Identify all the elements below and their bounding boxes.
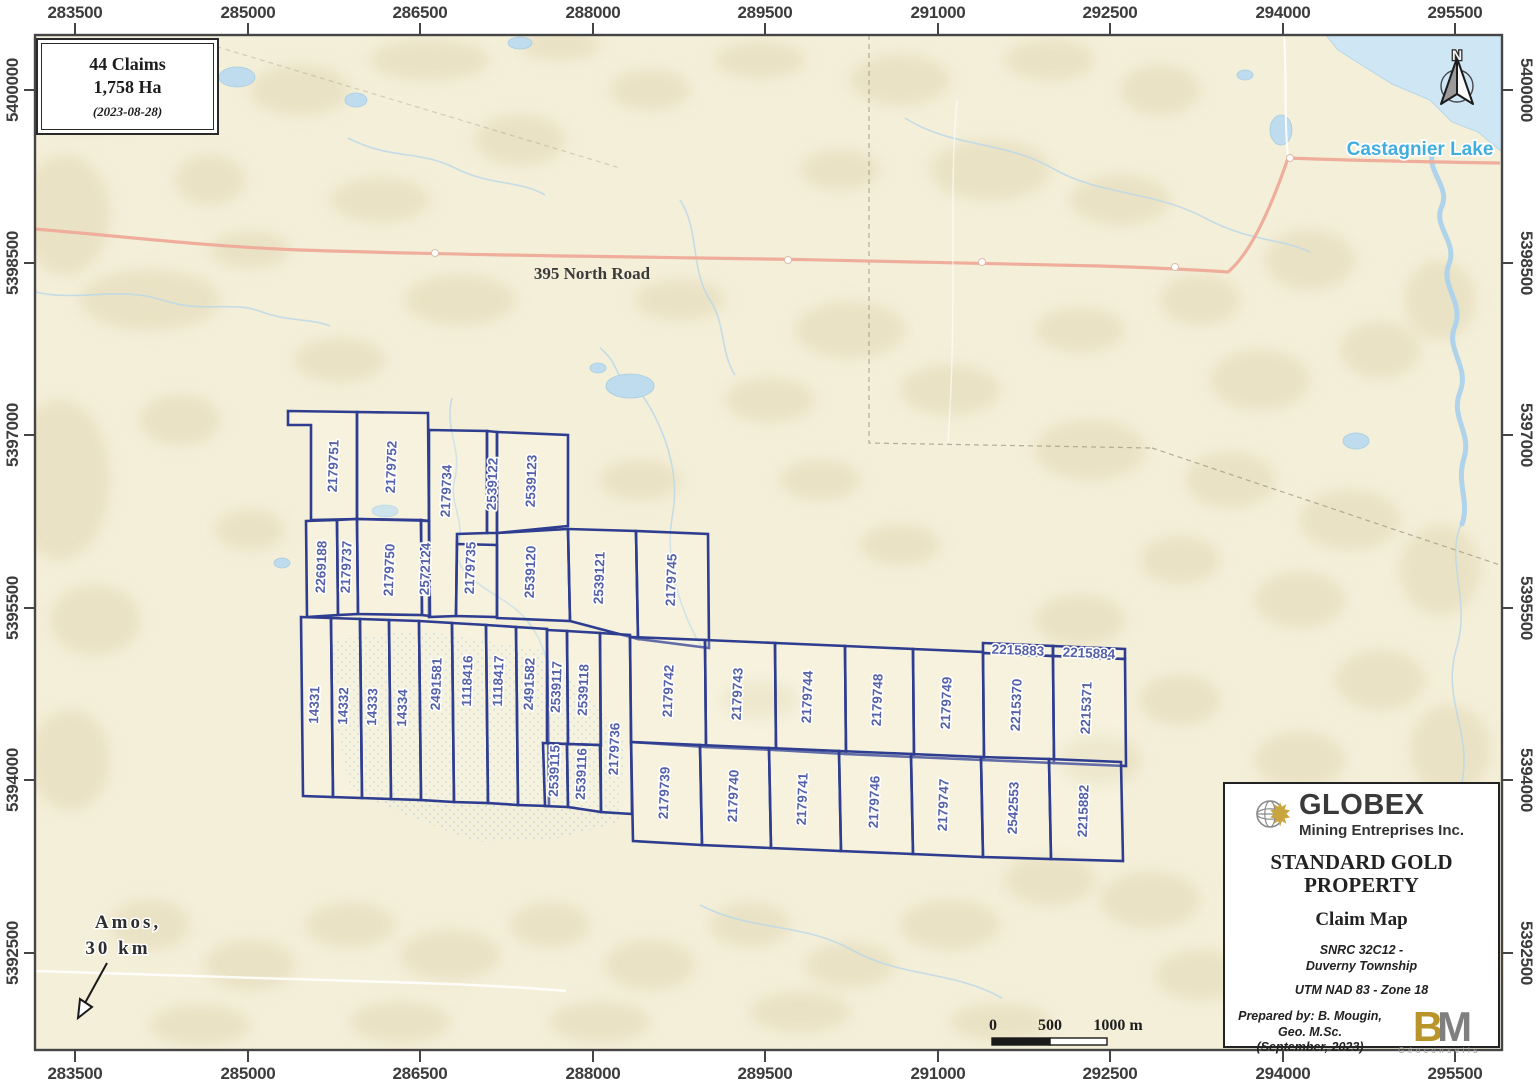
claim-label-2491581: 2491581 (428, 657, 445, 711)
axis-right: 5400000539850053970005395500539400053925… (1503, 58, 1536, 985)
axis-right-label: 5395500 (1517, 576, 1536, 640)
road-marker (1172, 264, 1179, 271)
prepared-line2: Geo. M.Sc. (1278, 1025, 1342, 1039)
scale-bar-white-segment (1050, 1038, 1107, 1045)
terrain-blob (1035, 420, 1145, 480)
axis-top-label: 286500 (393, 3, 448, 22)
claim-label-2179748: 2179748 (869, 673, 886, 727)
road-marker (785, 257, 792, 264)
axis-top: 2835002850002865002880002895002910002925… (48, 3, 1483, 34)
claim-label-2539123: 2539123 (523, 454, 540, 508)
terrain-blob (1265, 230, 1355, 290)
property-title: STANDARD GOLD PROPERTY (1270, 851, 1452, 897)
claims-area: 1,758 Ha (93, 76, 161, 99)
terrain-blob (750, 992, 850, 1032)
terrain-blob (350, 1002, 450, 1042)
terrain-blob (305, 903, 395, 947)
claim-map-page: 2179751217975221797342539122253912322691… (0, 0, 1536, 1085)
snrc-line2: Duverny Township (1306, 959, 1417, 973)
claim-label-2539121: 2539121 (591, 551, 608, 605)
axis-left-label: 5394000 (3, 748, 22, 812)
title-block: GLOBEX Mining Entreprises Inc. STANDARD … (1223, 782, 1500, 1048)
terrain-blob (1185, 452, 1275, 508)
road-marker (979, 259, 986, 266)
claim-label-2539116: 2539116 (573, 747, 590, 800)
terrain-blob (1140, 536, 1220, 584)
snrc-line1: SNRC 32C12 - (1320, 943, 1403, 957)
road-label: 395 North Road (534, 264, 651, 283)
company-subtitle: Mining Entreprises Inc. (1299, 822, 1464, 839)
terrain-blob (140, 395, 220, 445)
axis-top-label: 283500 (48, 3, 103, 22)
terrain-blob (1120, 65, 1200, 115)
axis-top-label: 285000 (221, 3, 276, 22)
terrain-blob (900, 900, 1000, 950)
terrain-blob (600, 460, 680, 500)
terrain-blob (80, 270, 220, 330)
claim-label-2539115: 2539115 (546, 744, 563, 797)
prepared-line1: Prepared by: B. Mougin, (1238, 1009, 1382, 1023)
claim-boundary-1118417 (486, 625, 518, 805)
prepared-line3: (September, 2023) (1257, 1040, 1364, 1054)
terrain-blob (1100, 872, 1200, 928)
claim-label-2269188: 2269188 (313, 540, 330, 594)
axis-bottom-label: 294000 (1256, 1064, 1311, 1083)
claim-label-2572124: 2572124 (417, 542, 434, 596)
claim-label-2179736: 2179736 (606, 722, 623, 776)
terrain-blob (30, 710, 110, 810)
terrain-blob (725, 378, 815, 422)
terrain-blob (1210, 350, 1310, 410)
axis-top-label: 291000 (911, 3, 966, 22)
terrain-blob (850, 55, 950, 105)
claim-label-2179740: 2179740 (725, 769, 742, 822)
claim-label-2215883: 2215883 (991, 642, 1045, 659)
road-marker (1287, 155, 1294, 162)
terrain-blob (510, 903, 590, 947)
pond (590, 363, 606, 373)
terrain-blob (1005, 40, 1095, 80)
claim-label-2542553: 2542553 (1005, 781, 1022, 835)
claim-label-2491582: 2491582 (521, 657, 538, 710)
terrain-blob (330, 178, 430, 222)
property-title-line1: STANDARD GOLD (1270, 850, 1452, 874)
terrain-blob (175, 155, 245, 205)
axis-top-label: 295500 (1428, 3, 1483, 22)
terrain-blob (780, 460, 860, 500)
pond (219, 67, 255, 87)
claim-label-2179742: 2179742 (660, 664, 677, 717)
snrc-reference: SNRC 32C12 - Duverny Township (1306, 943, 1417, 974)
company-name: GLOBEX (1299, 792, 1424, 820)
terrain-blob (1300, 490, 1400, 550)
claim-label-2179734: 2179734 (438, 464, 455, 518)
axis-bottom-label: 292500 (1083, 1064, 1138, 1083)
road-marker (432, 250, 439, 257)
axis-right-label: 5392500 (1517, 921, 1536, 985)
prepared-by: Prepared by: B. Mougin, Geo. M.Sc. (Sept… (1235, 1009, 1385, 1056)
claim-label-2539122: 2539122 (484, 457, 501, 510)
terrain-blob (715, 42, 805, 78)
pond (508, 37, 532, 49)
terrain-blob (215, 510, 285, 550)
axis-bottom-label: 289500 (738, 1064, 793, 1083)
terrain-blob (20, 155, 110, 275)
claim-label-14331: 14331 (306, 685, 322, 724)
terrain-blob (605, 940, 695, 990)
scale-label-1000: 1000 m (1093, 1017, 1143, 1034)
claim-label-2179745: 2179745 (663, 553, 680, 607)
axis-left-label: 5398500 (3, 231, 22, 295)
terrain-blob (1035, 308, 1125, 352)
claims-date: (2023-08-28) (93, 104, 162, 120)
claim-label-2179746: 2179746 (866, 775, 883, 829)
axis-right-label: 5397000 (1517, 403, 1536, 467)
map-subtitle: Claim Map (1315, 909, 1407, 931)
scale-bar-black-segment (992, 1038, 1050, 1045)
claim-label-14333: 14333 (364, 687, 380, 726)
terrain-blob (930, 140, 1050, 200)
terrain-blob (250, 65, 350, 115)
bm-logo-m: M (1437, 1003, 1466, 1050)
claim-label-2179743: 2179743 (729, 667, 746, 721)
terrain-blob (860, 525, 940, 565)
terrain-blob (1400, 525, 1480, 615)
axis-bottom-label: 295500 (1428, 1064, 1483, 1083)
terrain-blob (550, 1002, 650, 1042)
terrain-blob (475, 115, 565, 165)
claim-label-2215371: 2215371 (1078, 681, 1095, 735)
terrain-blob (1005, 855, 1095, 905)
axis-bottom-label: 288000 (566, 1064, 621, 1083)
amos-label-line1: Amos, (95, 912, 161, 933)
claim-label-2539120: 2539120 (522, 545, 539, 598)
claim-label-14334: 14334 (394, 688, 410, 727)
axis-bottom-label: 285000 (221, 1064, 276, 1083)
claim-boundary-2491581 (419, 621, 454, 802)
claims-info-box: 44 Claims 1,758 Ha (2023-08-28) (36, 38, 219, 135)
claim-label-2179751: 2179751 (325, 439, 342, 493)
claim-label-2179750: 2179750 (381, 543, 398, 596)
claim-label-2179744: 2179744 (799, 670, 816, 724)
bm-logo-b: B (1413, 1003, 1437, 1050)
terrain-blob (50, 585, 140, 655)
pond (1343, 433, 1369, 449)
terrain-blob (950, 1004, 1050, 1040)
claim-label-2539118: 2539118 (575, 663, 592, 716)
terrain-blob (710, 903, 790, 947)
axis-bottom-label: 283500 (48, 1064, 103, 1083)
axis-bottom-label: 286500 (393, 1064, 448, 1083)
lake-label: Castagnier Lake (1347, 139, 1494, 160)
axis-top-label: 292500 (1083, 3, 1138, 22)
bm-logo-subtitle: Géoconseils (1387, 1046, 1492, 1055)
globex-logo-icon (1253, 792, 1293, 841)
axis-left-label: 5400000 (3, 58, 22, 122)
claim-label-2179749: 2179749 (938, 676, 955, 729)
claim-boundary-1118416 (452, 623, 488, 803)
claim-label-2179752: 2179752 (383, 440, 400, 493)
terrain-blob (1335, 650, 1425, 710)
terrain-blob (295, 338, 385, 382)
claim-label-2179739: 2179739 (656, 766, 673, 819)
terrain-blob (800, 150, 880, 190)
datum-reference: UTM NAD 83 - Zone 18 (1295, 983, 1428, 999)
axis-bottom-label: 291000 (911, 1064, 966, 1083)
claim-label-14332: 14332 (335, 687, 351, 725)
bm-geoconseils-logo: BM Géoconseils (1387, 1009, 1492, 1055)
terrain-blob (795, 302, 905, 358)
claim-label-2539117: 2539117 (548, 661, 565, 713)
terrain-blob (1340, 322, 1420, 378)
terrain-blob (1160, 275, 1240, 325)
axis-left-label: 5392500 (3, 921, 22, 985)
claim-label-2179741: 2179741 (794, 772, 811, 826)
claim-label-2215884: 2215884 (1062, 645, 1116, 662)
terrain-blob (1255, 732, 1345, 788)
axis-left: 5400000539850053970005395500539400053925… (3, 58, 34, 985)
terrain-blob (400, 930, 500, 980)
pond (1237, 70, 1253, 80)
axis-top-label: 289500 (738, 3, 793, 22)
terrain-blob (1035, 595, 1125, 645)
claim-label-2215882: 2215882 (1075, 784, 1092, 837)
terrain-blob (405, 275, 515, 325)
claim-label-1118417: 1118417 (490, 655, 507, 707)
scale-label-0: 0 (989, 1017, 997, 1034)
terrain-blob (610, 70, 690, 110)
terrain-blob (10, 400, 110, 560)
terrain-blob (635, 280, 725, 320)
claim-label-1118416: 1118416 (459, 655, 476, 707)
claim-label-2179737: 2179737 (338, 540, 355, 593)
scale-label-500: 500 (1038, 1017, 1062, 1034)
axis-top-label: 294000 (1256, 3, 1311, 22)
axis-left-label: 5395500 (3, 576, 22, 640)
axis-right-label: 5394000 (1517, 748, 1536, 812)
pond (274, 558, 290, 568)
terrain-blob (1255, 572, 1345, 628)
pond (606, 374, 654, 398)
claim-label-2215370: 2215370 (1008, 678, 1025, 731)
terrain-blob (370, 40, 490, 80)
axis-right-label: 5400000 (1517, 58, 1536, 122)
axis-top-label: 288000 (566, 3, 621, 22)
pond (345, 93, 367, 107)
property-title-line2: PROPERTY (1304, 873, 1419, 897)
terrain-blob (150, 1005, 250, 1045)
terrain-blob (1405, 260, 1475, 340)
pond (1270, 115, 1292, 145)
claim-label-2179735: 2179735 (462, 541, 479, 595)
amos-label-line2: 30 km (85, 938, 150, 959)
north-arrow-n: N (1452, 47, 1462, 63)
claims-count: 44 Claims (89, 53, 166, 76)
terrain-blob (205, 940, 295, 990)
claim-label-2179747: 2179747 (935, 778, 952, 831)
terrain-blob (1140, 675, 1220, 725)
axis-left-label: 5397000 (3, 403, 22, 467)
axis-right-label: 5398500 (1517, 231, 1536, 295)
